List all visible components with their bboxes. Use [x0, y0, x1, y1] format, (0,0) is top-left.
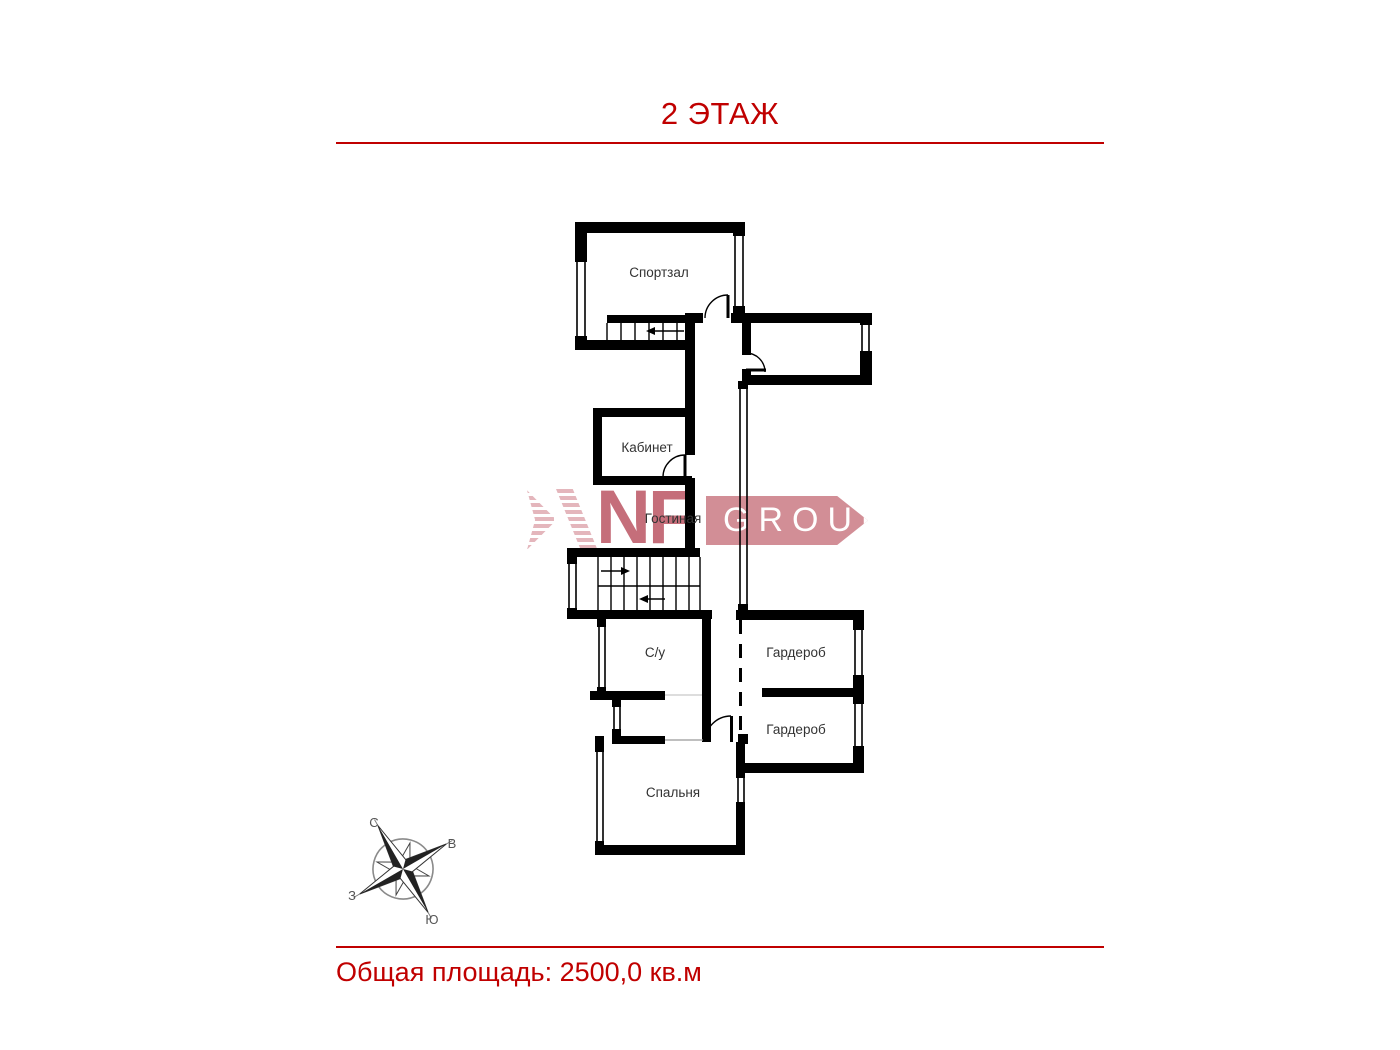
main-staircase	[598, 557, 700, 618]
door-leaf	[684, 455, 687, 478]
room-label-wardrobe-2: Гардероб	[766, 722, 826, 737]
compass-east-label: В	[448, 836, 457, 851]
floor-plan-page: 2 ЭТАЖ NF GROUP	[0, 0, 1400, 1050]
compass-south-label: Ю	[425, 912, 438, 927]
compass-north-label: С	[369, 815, 378, 830]
floor-plan-drawing: Спортзал Кабинет Гостиная С/у Гардероб Г…	[0, 0, 1400, 1050]
room-label-study: Кабинет	[621, 440, 672, 455]
compass-rose-icon: С В З Ю	[325, 791, 481, 947]
upper-staircase	[607, 323, 690, 340]
door-leaf	[730, 716, 733, 742]
walls	[567, 222, 872, 855]
door-leaf	[746, 369, 766, 372]
room-label-wardrobe-1: Гардероб	[766, 645, 826, 660]
room-label-gym: Спортзал	[629, 265, 689, 280]
room-label-bedroom: Спальня	[646, 785, 700, 800]
windows	[569, 234, 869, 843]
room-label-bathroom: С/у	[645, 645, 666, 660]
room-label-living: Гостиная	[645, 511, 702, 526]
compass-west-label: З	[348, 888, 356, 903]
door-leaf	[727, 295, 730, 318]
